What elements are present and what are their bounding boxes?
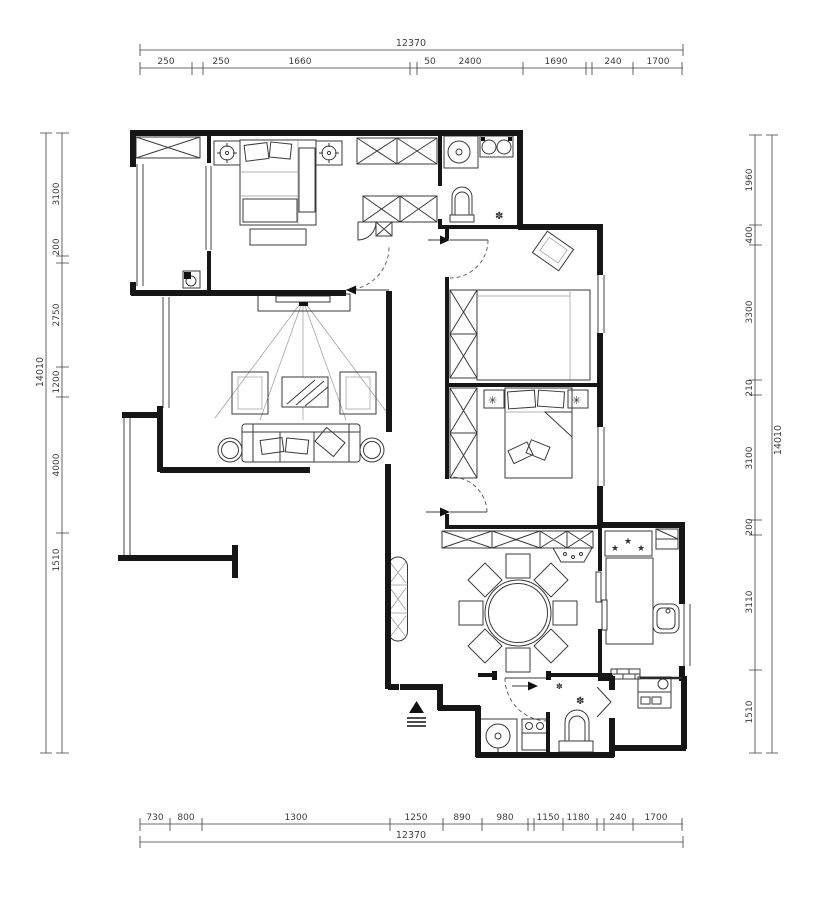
dim-top-total: 12370 <box>140 38 683 56</box>
dim-left-total: 14010 <box>35 133 52 753</box>
nightstand <box>214 141 240 165</box>
wash-basin <box>448 141 470 163</box>
folding-door <box>597 687 611 717</box>
bedroom-middle-door <box>428 236 488 279</box>
side-table <box>360 438 384 462</box>
washer <box>638 677 671 708</box>
living-room-furniture <box>215 294 391 462</box>
floor-plan-canvas: 12370 250 250 1660 50 2400 1690 240 1700… <box>0 0 825 900</box>
nightstand: ✳ <box>484 390 504 408</box>
lamp-icon: ✳ <box>488 394 497 407</box>
dim-label: 200 <box>52 238 62 255</box>
dim-label: 1700 <box>645 813 668 823</box>
dim-right-chain: 1960 400 3300 210 3100 200 3110 1510 <box>745 135 762 753</box>
dim-label: 1690 <box>545 57 568 67</box>
balcony-cabinet <box>136 137 200 158</box>
brick-sill <box>611 669 640 679</box>
dim-label: 50 <box>424 57 436 67</box>
dim-right-total: 14010 <box>766 135 784 753</box>
balcony-slider <box>206 166 211 250</box>
dim-label: 240 <box>609 813 626 823</box>
dim-bottom-total-label: 12370 <box>396 830 426 841</box>
master-door <box>346 247 389 295</box>
dim-top-chain: 250 250 1660 50 2400 1690 240 1700 <box>140 57 683 75</box>
wardrobe <box>357 138 437 164</box>
dim-label: 1510 <box>52 548 62 571</box>
armchair <box>532 231 573 271</box>
floor-plan-page: 12370 250 250 1660 50 2400 1690 240 1700… <box>0 0 825 900</box>
hall-closets <box>357 138 437 240</box>
dim-label: 2750 <box>52 303 62 326</box>
balcony-left <box>136 137 200 288</box>
armchair <box>340 372 376 414</box>
nightstand: ✳ <box>568 390 588 408</box>
kitchen-sliding-door <box>596 572 607 630</box>
toilet <box>450 187 474 222</box>
window-bedroom-lower <box>598 427 604 486</box>
burner-icon: ★ <box>624 537 632 547</box>
dim-label: 1300 <box>285 813 308 823</box>
floor-drain-icon: ✽ <box>576 696 584 707</box>
master-bedroom-furniture <box>214 140 342 245</box>
corner-cabinet <box>358 222 376 240</box>
sideboard-cabinets <box>442 531 593 548</box>
dim-label: 1960 <box>745 168 755 191</box>
dining-room-furniture <box>389 531 594 672</box>
burner-icon: ★ <box>637 544 645 554</box>
entry-marker <box>407 701 426 726</box>
window-bedroom-middle <box>598 275 604 333</box>
coffee-table <box>282 377 328 407</box>
dining-table <box>485 580 551 646</box>
window-balcony-left <box>137 164 143 286</box>
dim-label: 210 <box>745 379 755 396</box>
dim-label: 1150 <box>537 813 560 823</box>
dim-bottom-chain: 730 800 1300 1250 890 980 1150 1180 240 … <box>140 813 683 831</box>
wardrobe <box>363 196 437 222</box>
kitchen-sink <box>653 604 679 633</box>
dim-label: 1180 <box>567 813 590 823</box>
double-bed <box>505 388 572 478</box>
dim-top-total-label: 12370 <box>396 38 426 49</box>
bedroom-lower-door <box>426 477 487 517</box>
dim-label: 200 <box>745 518 755 535</box>
dim-label: 3110 <box>745 590 755 613</box>
dim-label: 3100 <box>745 446 755 469</box>
dim-label: 1250 <box>405 813 428 823</box>
wash-basin <box>486 724 510 755</box>
dim-label: 1660 <box>289 57 312 67</box>
side-table <box>218 438 242 462</box>
dim-label: 250 <box>212 57 229 67</box>
dim-label: 890 <box>453 813 470 823</box>
window-living-left <box>163 297 169 408</box>
floor-drain-icon: ✽ <box>495 211 503 222</box>
cooktop <box>480 136 513 157</box>
dim-label: 2400 <box>459 57 482 67</box>
dim-right-total-label: 14010 <box>773 425 784 455</box>
dim-label: 1700 <box>647 57 670 67</box>
window-kitchen-right <box>684 604 690 666</box>
dim-label: 730 <box>146 813 163 823</box>
dim-label: 800 <box>177 813 194 823</box>
bathroom-top: ✽ <box>444 136 513 222</box>
console-table <box>553 548 592 562</box>
corner-shelf <box>376 222 392 236</box>
bed-bench <box>250 229 306 245</box>
bedroom-lower-furniture: ✳ ✳ <box>450 388 588 478</box>
bathroom-bottom-door <box>492 671 551 721</box>
wardrobe <box>450 388 477 478</box>
bedroom-middle-furniture <box>450 231 590 380</box>
cooktop: ★ ★ ★ <box>605 531 652 556</box>
dim-bottom-total: 12370 <box>140 830 683 848</box>
armchair <box>232 372 268 414</box>
dim-label: 980 <box>496 813 513 823</box>
dim-label: 1200 <box>52 370 62 393</box>
dim-label: 3100 <box>52 182 62 205</box>
nightstand <box>316 141 342 165</box>
dim-label: 1510 <box>745 700 755 723</box>
bed <box>477 290 590 380</box>
dim-label: 3300 <box>745 300 755 323</box>
dim-label: 250 <box>157 57 174 67</box>
bathroom-bottom: ✽ ✽ <box>480 682 593 755</box>
dim-label: 4000 <box>52 453 62 476</box>
kitchen-furniture: ★ ★ ★ <box>605 529 679 644</box>
dim-left-chain: 3100 200 2750 1200 4000 1510 <box>52 133 69 753</box>
floor-drain-icon: ✽ <box>556 682 563 691</box>
dim-left-total-label: 14010 <box>35 357 46 387</box>
tv-cabinet <box>258 294 350 311</box>
toilet <box>559 710 593 752</box>
entry-arrow-icon <box>409 701 424 713</box>
lamp-icon: ✳ <box>572 394 581 407</box>
oval-cabinet <box>389 557 408 641</box>
dim-label: 240 <box>604 57 621 67</box>
utility-box <box>183 271 200 288</box>
sofa <box>242 424 360 462</box>
dim-label: 400 <box>745 226 755 243</box>
range-hood <box>656 529 678 549</box>
kitchen-counter <box>606 558 653 644</box>
window-bay-left <box>124 418 130 556</box>
washing-machine <box>522 719 549 750</box>
entry-steps-icon <box>407 718 426 726</box>
burner-icon: ★ <box>611 544 619 554</box>
double-bed <box>240 140 316 225</box>
walls <box>118 130 686 757</box>
wardrobe <box>450 290 477 378</box>
